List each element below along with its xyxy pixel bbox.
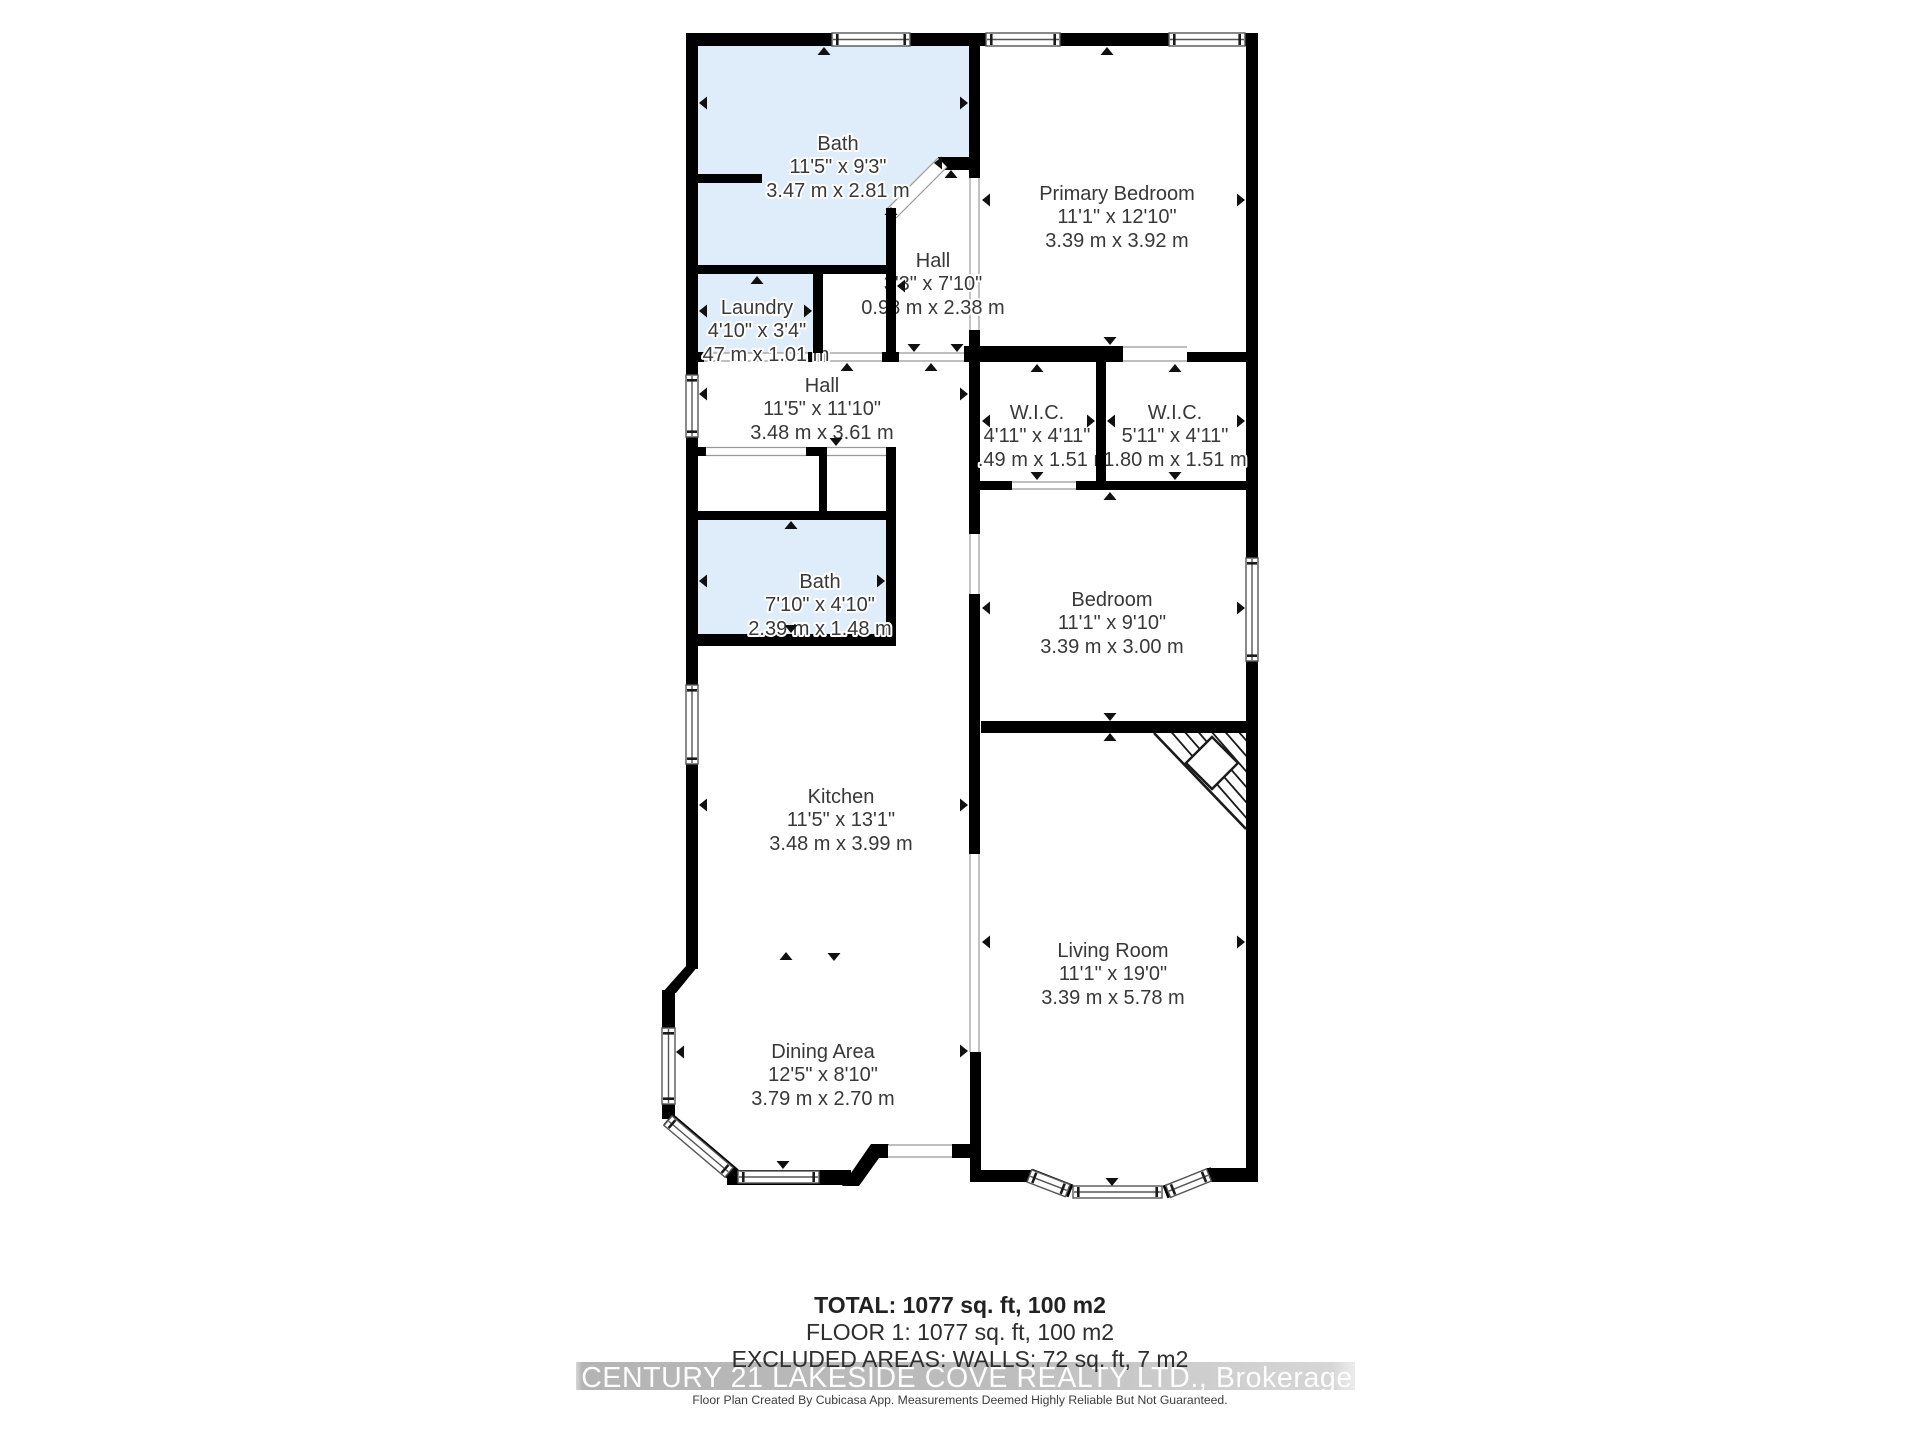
svg-text:7'10" x 4'10": 7'10" x 4'10"	[765, 594, 875, 616]
svg-text:12'5" x 8'10": 12'5" x 8'10"	[768, 1064, 878, 1086]
svg-text:W.I.C.: W.I.C.	[1010, 402, 1064, 424]
svg-text:Laundry: Laundry	[721, 297, 793, 319]
svg-text:3.39 m x 5.78 m: 3.39 m x 5.78 m	[1041, 987, 1184, 1009]
svg-text:3.39 m x 3.00 m: 3.39 m x 3.00 m	[1040, 636, 1183, 658]
svg-text:3'3" x 7'10": 3'3" x 7'10"	[884, 273, 983, 295]
svg-text:Primary Bedroom: Primary Bedroom	[1039, 183, 1195, 205]
svg-text:Living Room: Living Room	[1057, 940, 1168, 962]
svg-text:11'1" x 19'0": 11'1" x 19'0"	[1059, 963, 1167, 985]
svg-text:1.80 m x 1.51 m: 1.80 m x 1.51 m	[1103, 449, 1246, 471]
svg-text:EXCLUDED AREAS: WALLS: 72 sq.: EXCLUDED AREAS: WALLS: 72 sq. ft, 7 m2	[732, 1346, 1189, 1372]
svg-text:W.I.C.: W.I.C.	[1148, 402, 1202, 424]
svg-text:4'10" x 3'4": 4'10" x 3'4"	[708, 320, 807, 342]
svg-text:11'5" x 9'3": 11'5" x 9'3"	[789, 156, 886, 178]
svg-text:Kitchen: Kitchen	[808, 786, 875, 808]
svg-text:TOTAL: 1077 sq. ft, 100 m2: TOTAL: 1077 sq. ft, 100 m2	[814, 1292, 1106, 1318]
svg-text:11'1" x 9'10": 11'1" x 9'10"	[1058, 612, 1166, 634]
svg-text:47 m x 1.01 m: 47 m x 1.01 m	[703, 344, 830, 366]
svg-text:0.98 m x 2.38 m: 0.98 m x 2.38 m	[861, 297, 1004, 319]
svg-text:Bath: Bath	[817, 133, 858, 155]
svg-text:4'11" x 4'11": 4'11" x 4'11"	[984, 425, 1091, 447]
svg-text:2.39 m x 1.48 m: 2.39 m x 1.48 m	[748, 618, 891, 640]
svg-text:3.47 m x 2.81 m: 3.47 m x 2.81 m	[766, 180, 909, 202]
svg-text:Dining Area: Dining Area	[771, 1041, 875, 1063]
svg-text:Bedroom: Bedroom	[1071, 589, 1152, 611]
svg-text:Hall: Hall	[916, 250, 950, 272]
svg-text:3.48 m x 3.61 m: 3.48 m x 3.61 m	[750, 422, 893, 444]
svg-text:11'1" x 12'10": 11'1" x 12'10"	[1057, 206, 1176, 228]
svg-text:FLOOR 1: 1077 sq. ft, 100 m2: FLOOR 1: 1077 sq. ft, 100 m2	[806, 1319, 1114, 1345]
svg-text:Hall: Hall	[805, 375, 839, 397]
svg-text:.49 m x 1.51 m: .49 m x 1.51 m	[978, 449, 1110, 471]
svg-text:5'11" x 4'11": 5'11" x 4'11"	[1122, 425, 1229, 447]
svg-text:11'5" x 13'1": 11'5" x 13'1"	[787, 809, 895, 831]
svg-text:3.48 m x 3.99 m: 3.48 m x 3.99 m	[769, 833, 912, 855]
svg-text:11'5" x 11'10": 11'5" x 11'10"	[763, 398, 881, 420]
svg-text:Bath: Bath	[799, 571, 840, 593]
svg-text:3.79 m x 2.70 m: 3.79 m x 2.70 m	[751, 1088, 894, 1110]
svg-text:3.39 m x 3.92 m: 3.39 m x 3.92 m	[1045, 230, 1188, 252]
svg-text:Floor Plan Created By Cubicasa: Floor Plan Created By Cubicasa App. Meas…	[692, 1393, 1227, 1407]
